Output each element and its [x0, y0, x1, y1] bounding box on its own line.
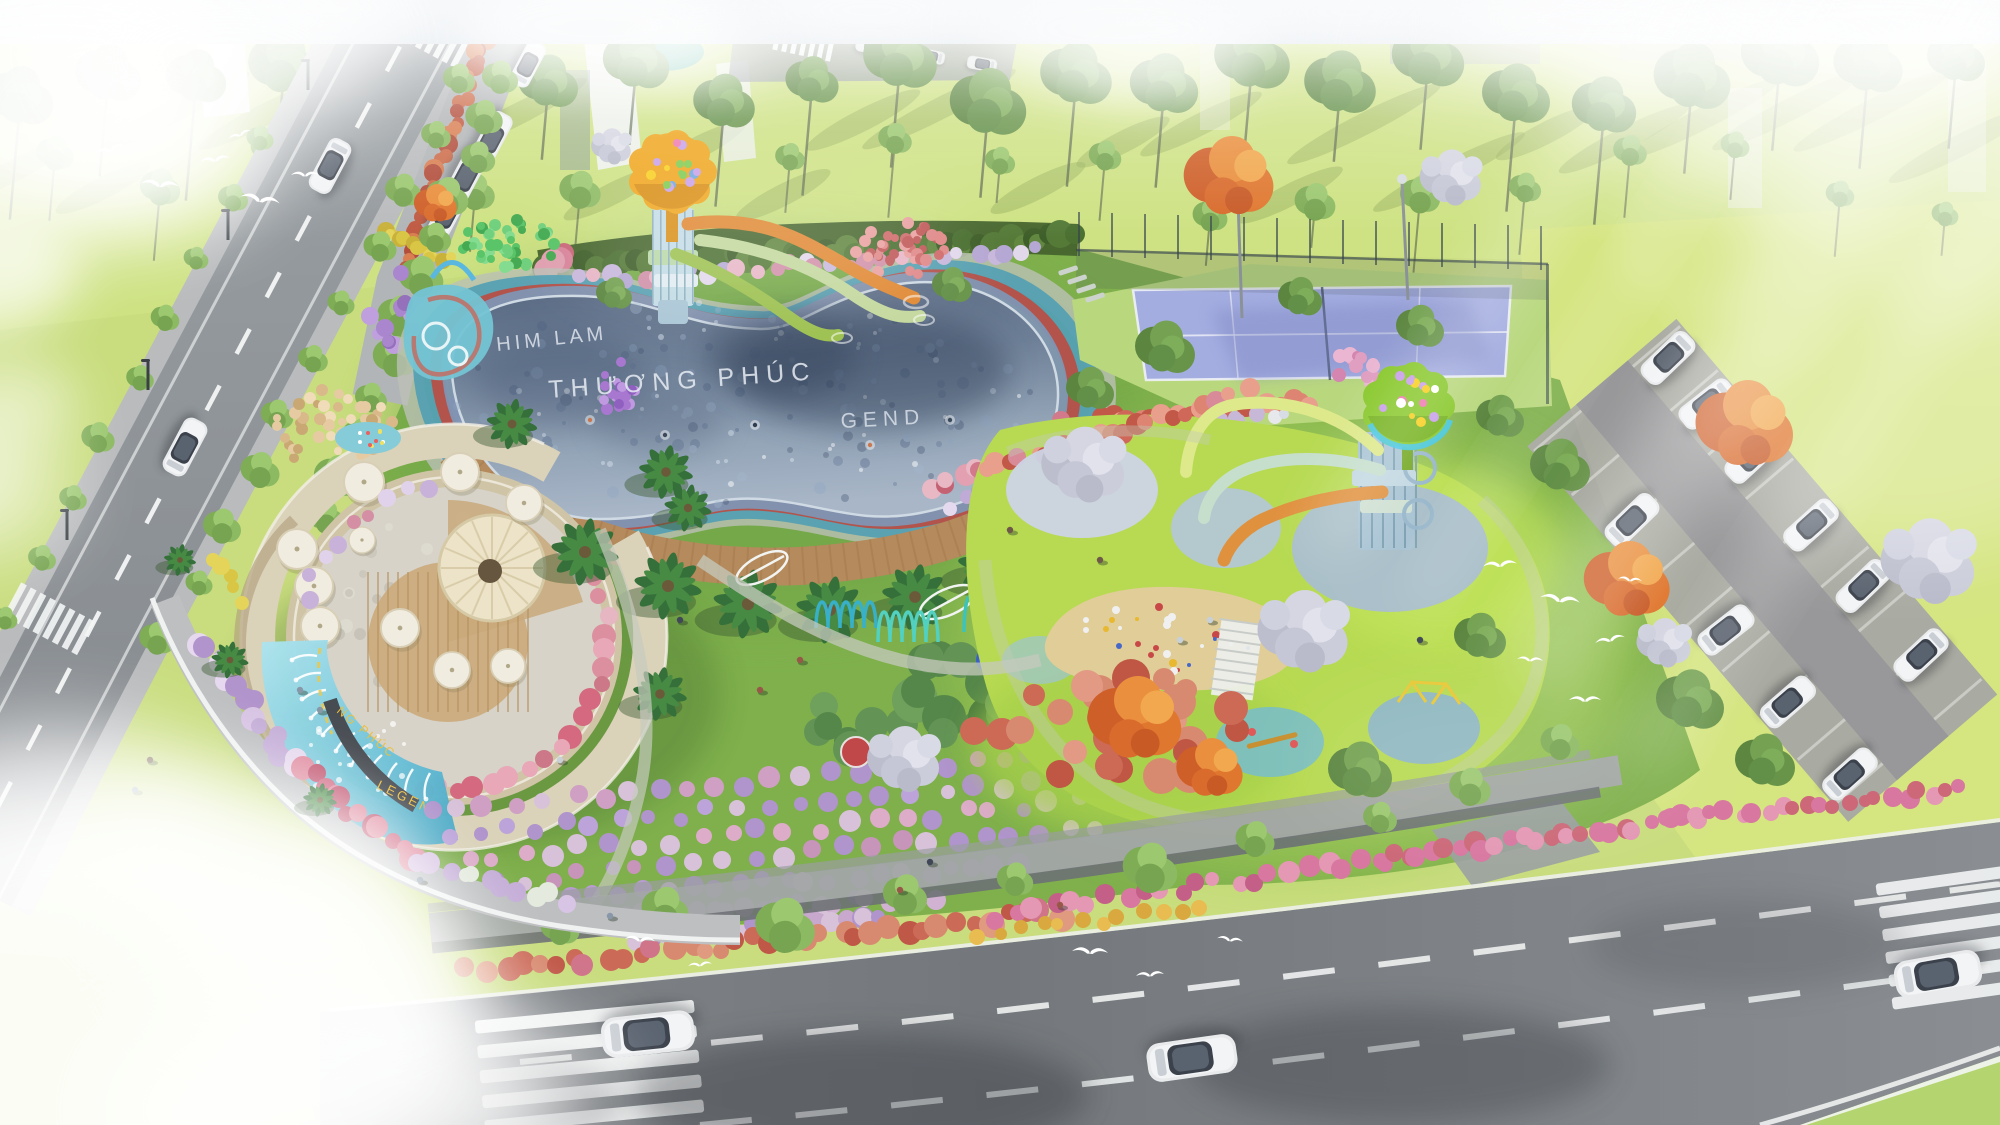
svg-text:GEND: GEND [840, 406, 926, 433]
